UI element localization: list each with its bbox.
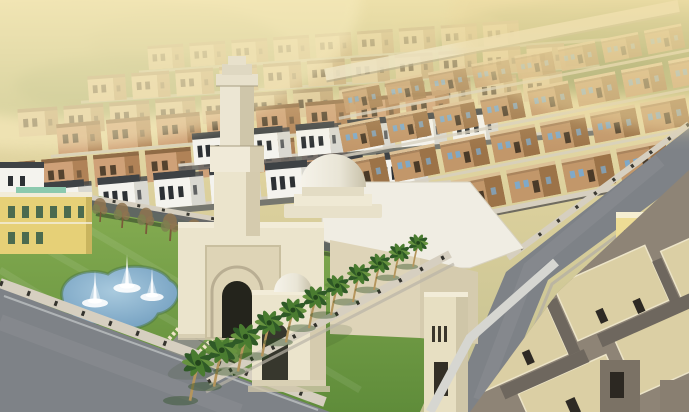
slit-window <box>438 326 441 342</box>
rendering-canvas: Residential compound aerial rendering <box>0 0 689 412</box>
slit-window <box>432 326 435 342</box>
minaret-cap <box>216 74 258 86</box>
entrance-steps <box>248 386 330 392</box>
slit-window <box>444 326 447 342</box>
aerial-rendering: Residential compound aerial rendering <box>0 0 689 412</box>
minaret-lower-shade <box>246 170 260 236</box>
minaret-mid-shade <box>250 146 264 172</box>
window-opening <box>8 176 13 186</box>
window-opening <box>20 176 25 186</box>
minaret-top <box>228 56 246 65</box>
minaret <box>210 56 264 236</box>
dome-base-tier <box>284 204 382 218</box>
parapet <box>424 292 468 297</box>
white-villa-roof <box>0 162 44 168</box>
mint-roof-edge <box>16 187 66 193</box>
building-facade <box>0 196 92 254</box>
villa-front-face <box>660 380 689 412</box>
minaret-cap-step <box>222 64 252 75</box>
villa <box>153 169 206 209</box>
atmospheric-haze <box>0 0 689 150</box>
minaret-shaft <box>220 84 240 146</box>
entrance-steps <box>252 380 326 386</box>
minaret-shaft-shade <box>240 84 254 146</box>
building-side <box>86 196 92 254</box>
recessed-balcony <box>610 372 624 398</box>
cornice-line <box>0 222 92 224</box>
dome-drum <box>302 186 364 196</box>
